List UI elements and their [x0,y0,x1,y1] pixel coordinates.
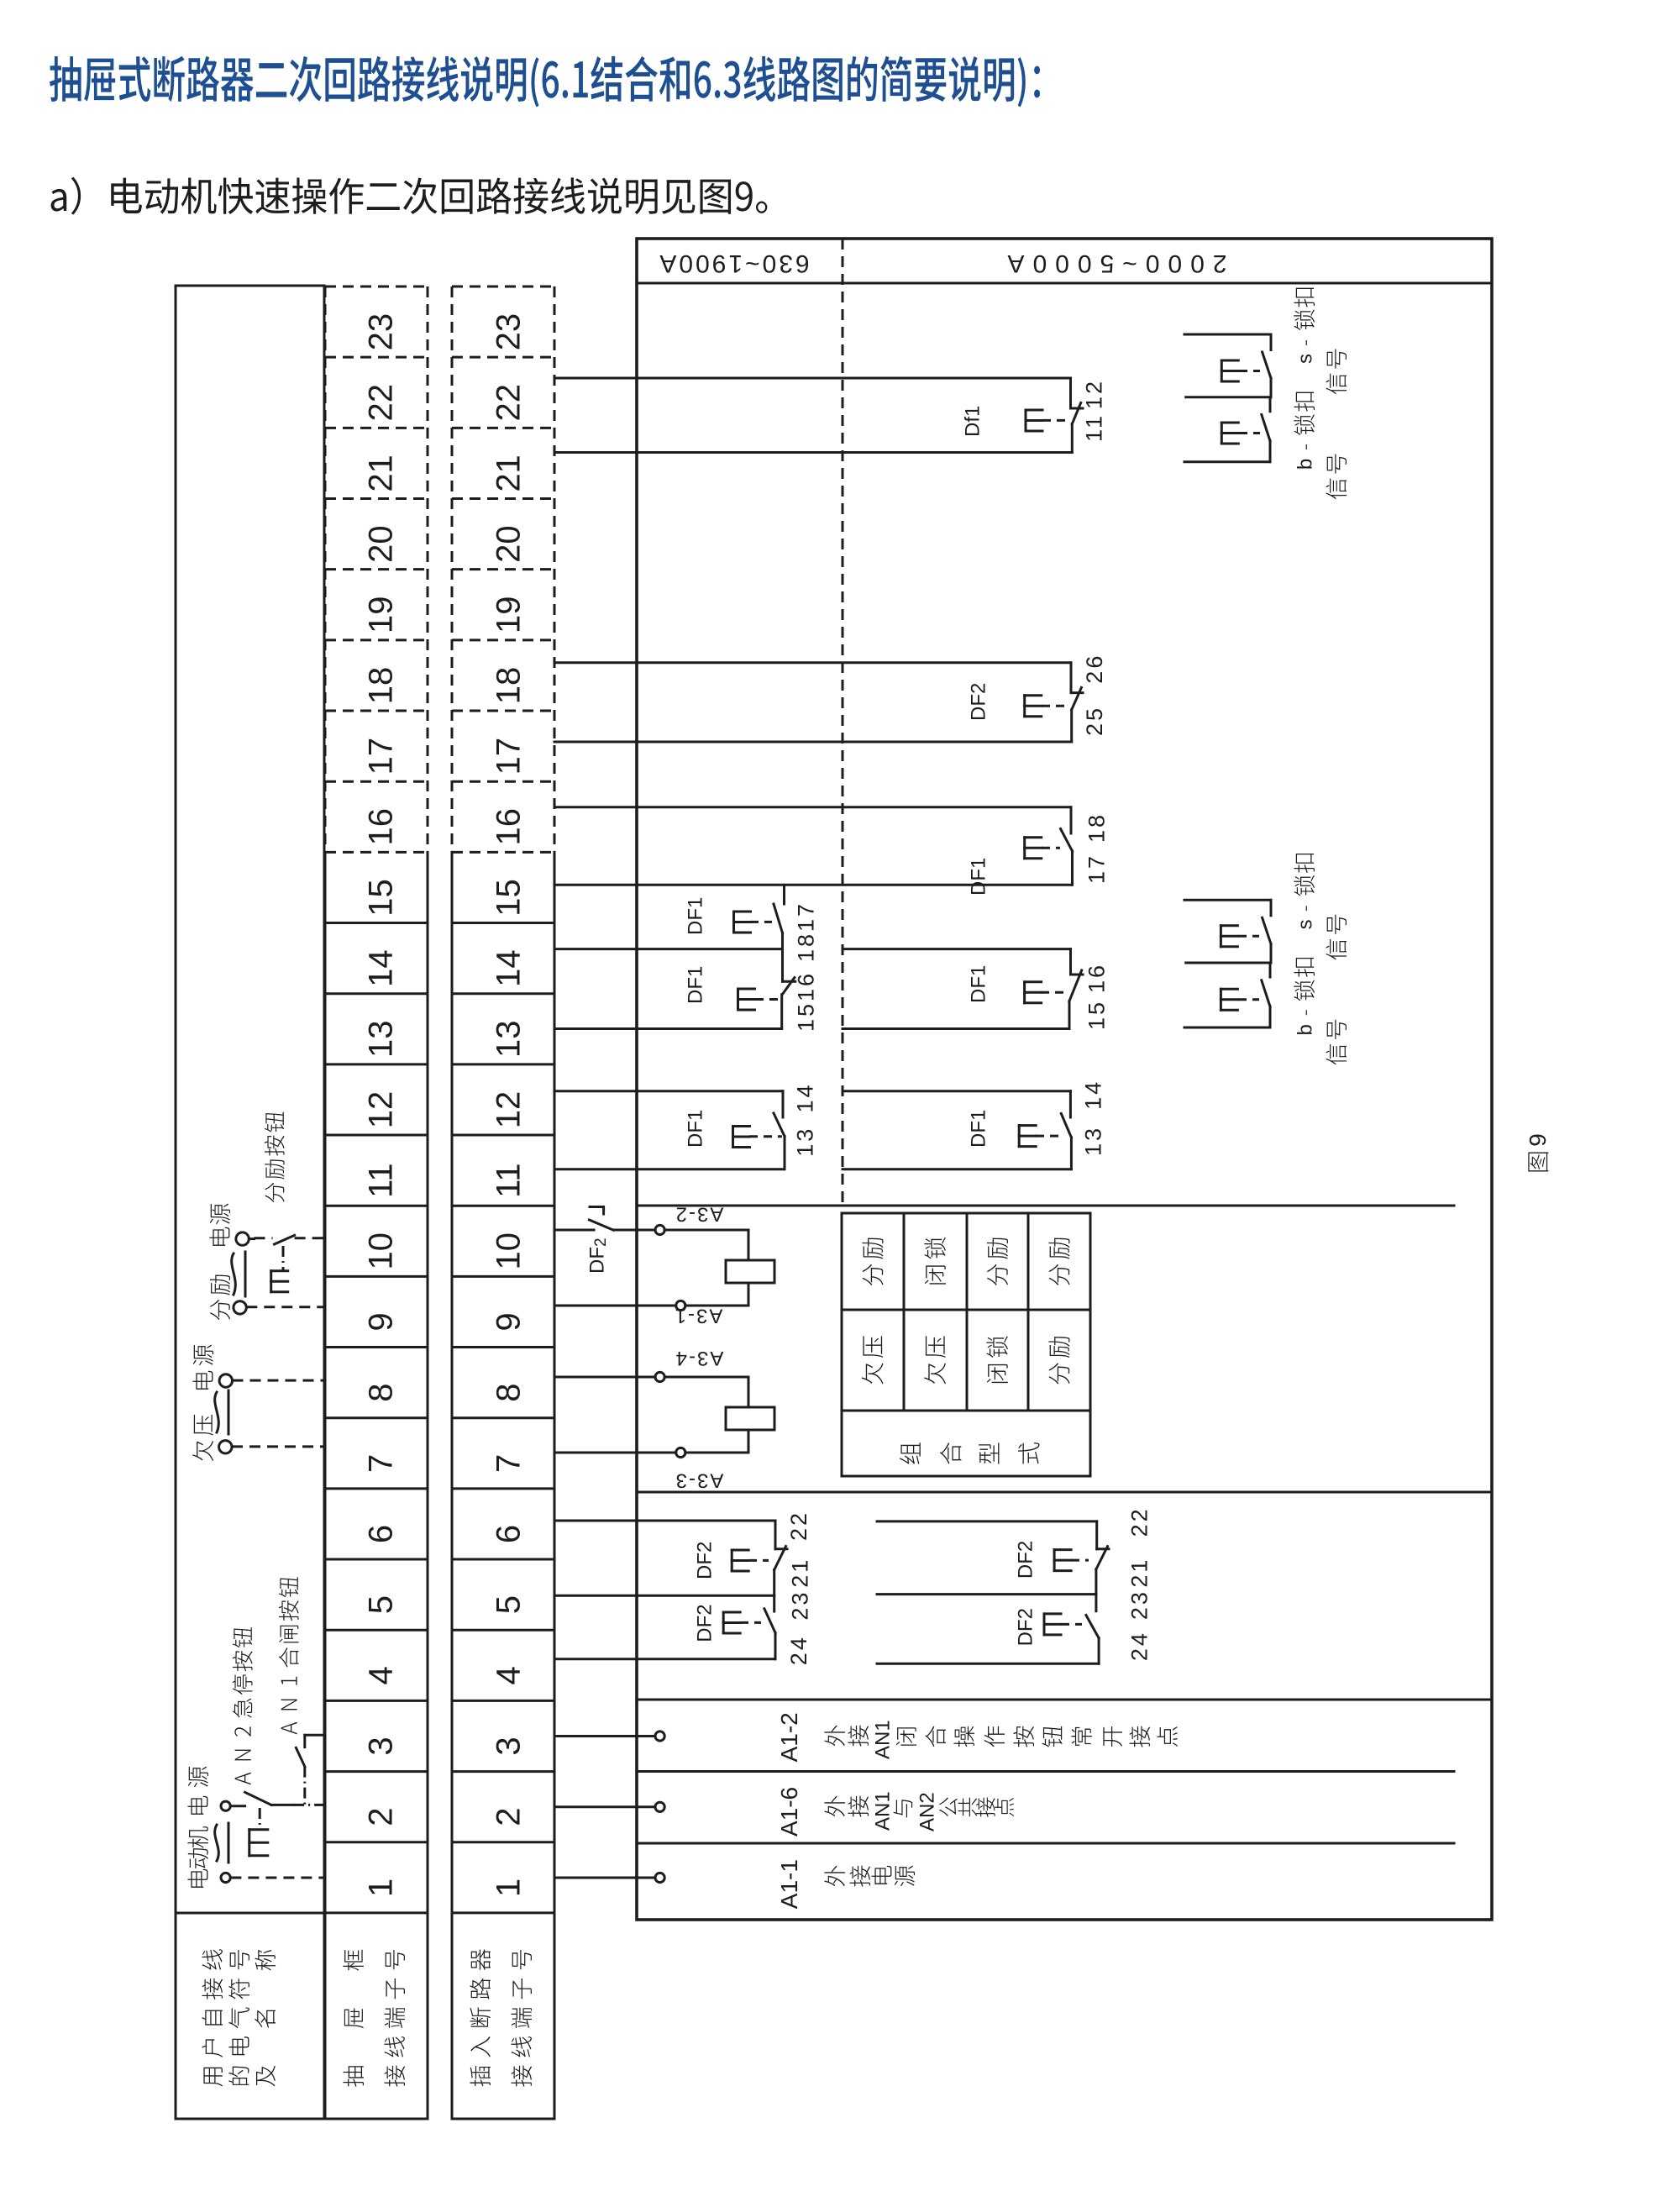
svg-text:7: 7 [490,1454,527,1473]
svg-text:18: 18 [1084,812,1110,843]
svg-text:AN1: AN1 [872,1791,895,1831]
svg-text:A3-4: A3-4 [675,1347,724,1369]
svg-text:6: 6 [362,1525,399,1543]
svg-text:21: 21 [788,1558,813,1588]
svg-text:2000~5000A: 2000~5000A [999,250,1226,277]
svg-text:25: 25 [1082,706,1107,736]
svg-text:22: 22 [362,384,399,422]
svg-text:A3-1: A3-1 [674,1304,723,1327]
svg-text:7: 7 [362,1454,399,1473]
svg-text:21: 21 [1127,1558,1152,1588]
svg-text:14: 14 [362,949,399,987]
svg-text:22: 22 [786,1511,811,1541]
svg-text:14: 14 [490,949,527,987]
svg-text:24: 24 [1127,1631,1152,1661]
svg-text:19: 19 [362,596,399,634]
svg-text:DF2: DF2 [694,1542,717,1579]
svg-text:20: 20 [490,525,527,563]
svg-text:12: 12 [490,1091,527,1129]
svg-text:23: 23 [490,313,527,351]
svg-text:23: 23 [788,1590,813,1621]
svg-text:2: 2 [592,1238,610,1247]
svg-text:22: 22 [490,384,527,422]
svg-text:DF2: DF2 [968,683,990,721]
svg-text:s: s [1294,919,1317,929]
svg-text:9: 9 [362,1312,399,1331]
svg-text:23: 23 [1127,1590,1152,1620]
svg-text:8: 8 [490,1384,527,1402]
svg-text:18: 18 [490,667,527,705]
svg-text:14: 14 [1081,1080,1106,1110]
svg-text:10: 10 [362,1232,399,1270]
svg-text:1: 1 [490,1879,527,1897]
svg-text:9: 9 [1525,1133,1551,1147]
svg-text:16: 16 [1084,963,1110,993]
svg-text:2: 2 [362,1808,399,1826]
svg-text:11: 11 [1082,413,1107,442]
svg-text:DF1: DF1 [968,858,990,896]
svg-text:1817: 1817 [794,901,819,962]
svg-text:DF1: DF1 [685,966,707,1004]
svg-text:1516: 1516 [794,971,819,1032]
svg-text:8: 8 [362,1384,399,1402]
svg-text:16: 16 [490,808,527,846]
svg-text:13: 13 [793,1127,818,1157]
svg-text:4: 4 [490,1666,527,1684]
svg-text:17: 17 [1084,854,1110,884]
svg-text:3: 3 [490,1737,527,1755]
svg-text:20: 20 [362,525,399,563]
svg-text:19: 19 [490,596,527,634]
svg-text:DF1: DF1 [968,1110,990,1148]
svg-text:12: 12 [362,1091,399,1129]
svg-text:15: 15 [1084,1000,1110,1030]
svg-text:DF2: DF2 [1014,1608,1037,1646]
svg-text:AN2: AN2 [916,1792,939,1831]
svg-text:A1-6: A1-6 [776,1787,802,1837]
svg-text:21: 21 [490,455,527,492]
svg-text:6: 6 [490,1525,527,1543]
svg-text:DF2: DF2 [694,1604,717,1642]
svg-text:21: 21 [362,455,399,492]
svg-text:DF1: DF1 [685,897,707,935]
svg-text:15: 15 [490,879,527,917]
svg-text:13: 13 [490,1021,527,1059]
svg-text:10: 10 [490,1232,527,1270]
svg-text:3: 3 [362,1737,399,1755]
svg-text:17: 17 [490,738,527,775]
svg-text:23: 23 [362,313,399,351]
svg-text:22: 22 [1127,1506,1152,1537]
svg-text:12: 12 [1082,379,1107,409]
svg-text:s: s [1294,354,1317,364]
svg-text:5: 5 [362,1595,399,1614]
svg-text:9: 9 [490,1312,527,1331]
svg-text:18: 18 [362,667,399,705]
svg-text:2: 2 [490,1808,527,1826]
svg-text:DF: DF [586,1247,609,1274]
svg-text:26: 26 [1082,654,1107,684]
svg-text:5: 5 [490,1595,527,1614]
svg-text:DF2: DF2 [1014,1541,1037,1579]
svg-text:DF1: DF1 [968,965,990,1003]
svg-text:Df1: Df1 [962,406,984,437]
svg-text:4: 4 [362,1666,399,1684]
svg-text:A1-1: A1-1 [776,1859,802,1909]
svg-text:11: 11 [362,1163,399,1198]
svg-text:16: 16 [362,808,399,846]
svg-text:11: 11 [490,1163,527,1198]
svg-text:A3-2: A3-2 [675,1202,724,1225]
svg-text:A3-3: A3-3 [675,1469,724,1491]
svg-text:14: 14 [793,1082,818,1112]
svg-text:630~1900A: 630~1900A [657,250,809,277]
svg-text:DF1: DF1 [685,1110,707,1148]
svg-text:17: 17 [362,738,399,775]
svg-text:AN1: AN1 [872,1720,895,1759]
svg-text:b: b [1294,1024,1317,1035]
svg-text:1: 1 [362,1879,399,1897]
svg-text:15: 15 [362,879,399,917]
svg-text:A1-2: A1-2 [776,1712,802,1762]
svg-text:13: 13 [362,1021,399,1059]
svg-text:b: b [1294,459,1317,470]
svg-text:13: 13 [1081,1126,1106,1156]
svg-text:24: 24 [786,1635,811,1665]
